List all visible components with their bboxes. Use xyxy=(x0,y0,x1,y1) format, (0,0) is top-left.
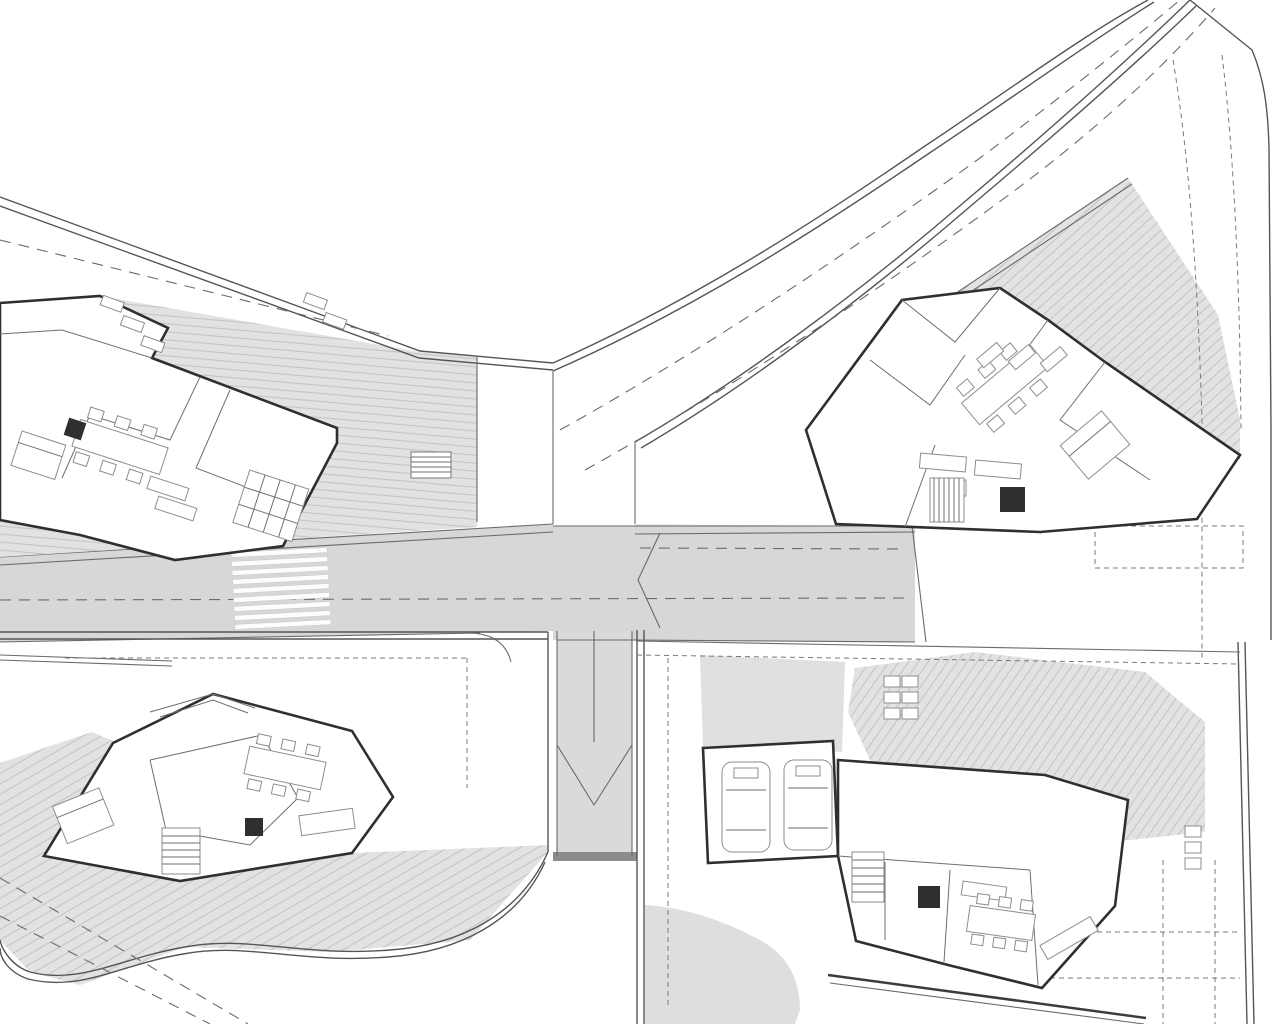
parcel-bottom-right-top-edge xyxy=(637,641,1240,652)
pool-stairs-villa-top-left xyxy=(411,452,451,478)
elevator-shaft xyxy=(918,886,940,908)
road-corner-curb xyxy=(470,633,511,662)
staircase xyxy=(852,852,884,902)
staircase xyxy=(930,478,964,522)
site-plan-canvas xyxy=(0,0,1280,1024)
road-east xyxy=(553,524,915,642)
elevator-shaft xyxy=(245,818,263,836)
sun-loungers xyxy=(1185,826,1201,869)
villa-bottom-left xyxy=(44,694,393,881)
car xyxy=(784,760,832,850)
car xyxy=(722,762,770,852)
parcel-bottom-right-left-edge xyxy=(637,630,644,1024)
retaining-wall-bottom-right-2 xyxy=(830,983,1144,1024)
elevator-shaft xyxy=(1000,487,1025,512)
site-plan xyxy=(0,0,1280,1024)
retaining-wall-bottom-right xyxy=(828,975,1146,1018)
garage-apron xyxy=(700,655,845,752)
parking-bay xyxy=(1095,526,1243,568)
street-mouth xyxy=(553,360,635,526)
staircase xyxy=(162,828,200,874)
ramp-end-wall xyxy=(553,852,637,861)
boundary-east-lower xyxy=(1238,642,1254,1024)
